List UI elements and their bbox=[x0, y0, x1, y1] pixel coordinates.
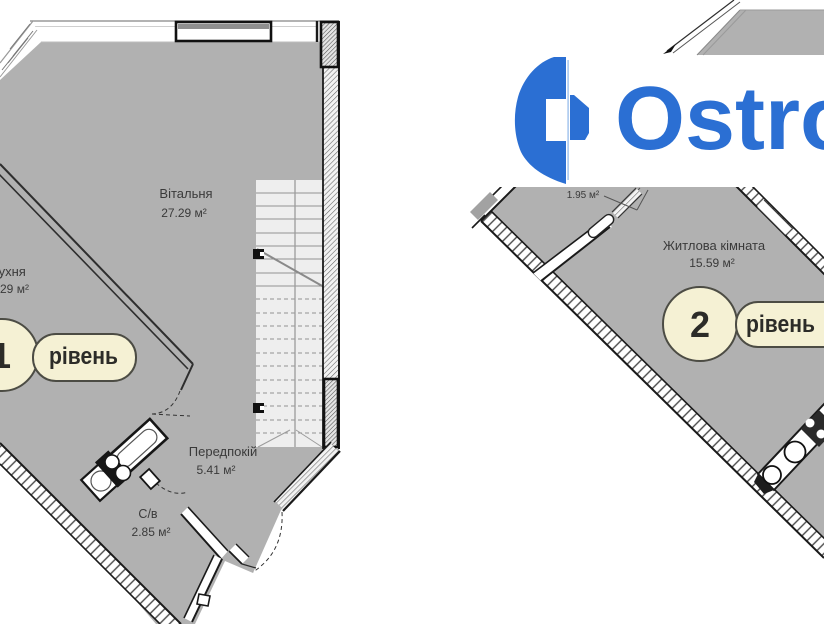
svg-text:Кухня: Кухня bbox=[0, 264, 26, 279]
svg-text:9.29 м²: 9.29 м² bbox=[0, 282, 29, 296]
svg-text:2.85 м²: 2.85 м² bbox=[132, 525, 171, 539]
svg-text:2: 2 bbox=[690, 304, 710, 345]
svg-text:рівень: рівень bbox=[746, 311, 815, 338]
svg-text:5.41 м²: 5.41 м² bbox=[197, 463, 236, 477]
svg-text:Передпокій: Передпокій bbox=[189, 444, 257, 459]
svg-text:27.29 м²: 27.29 м² bbox=[161, 206, 207, 220]
svg-text:Житлова кімната: Житлова кімната bbox=[663, 238, 766, 253]
svg-text:Вітальня: Вітальня bbox=[159, 186, 212, 201]
svg-text:рівень: рівень bbox=[49, 343, 118, 370]
svg-text:1: 1 bbox=[0, 335, 11, 376]
svg-text:С/в: С/в bbox=[138, 507, 158, 521]
svg-text:15.59 м²: 15.59 м² bbox=[689, 256, 735, 270]
svg-text:1.95 м²: 1.95 м² bbox=[567, 190, 600, 201]
svg-text:Ostrov: Ostrov bbox=[615, 69, 824, 169]
